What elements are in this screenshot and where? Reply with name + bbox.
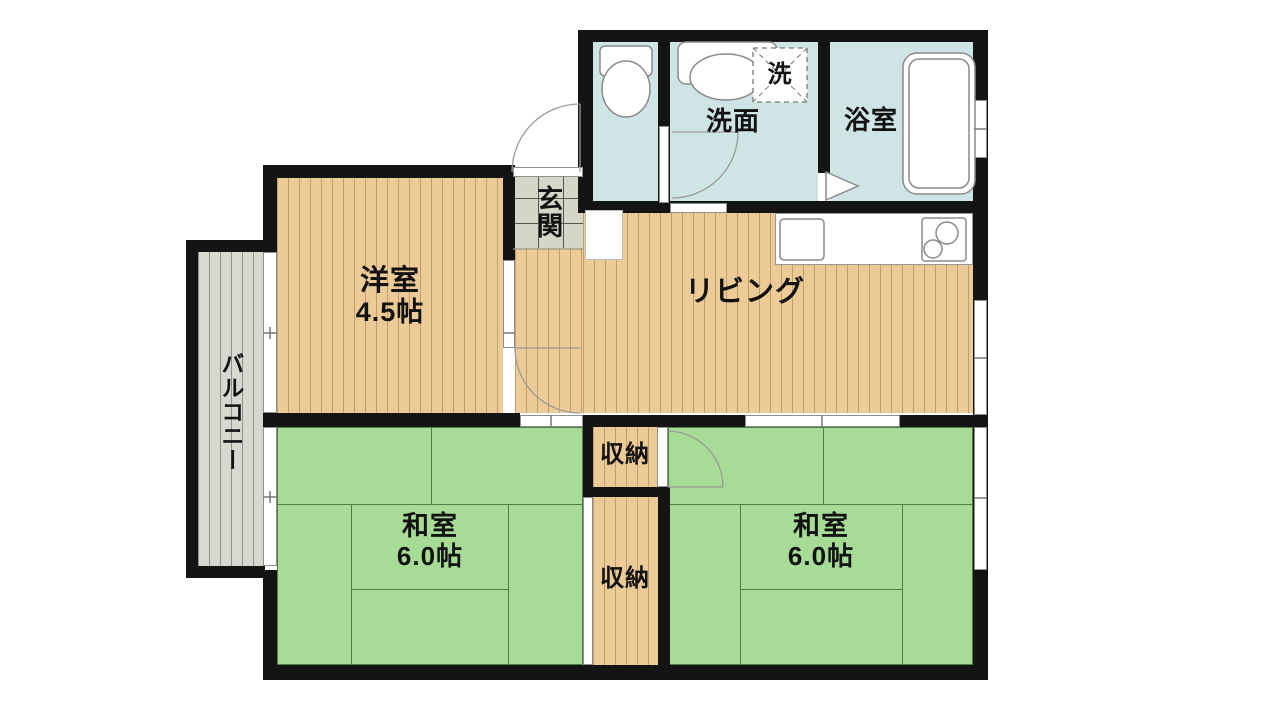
wall-balcony [186, 240, 265, 252]
wall [263, 570, 277, 680]
wall [503, 178, 515, 260]
sliding-door-japanese-right [745, 415, 900, 427]
tatami-mat [668, 427, 824, 505]
hall-area [515, 248, 583, 413]
western-room-name: 洋室 [356, 265, 425, 297]
tatami-mat [668, 504, 741, 665]
toilet-room-area [593, 42, 658, 201]
wall-balcony [186, 240, 198, 578]
front-door-threshold [513, 167, 583, 177]
sliding-door-japanese-left [520, 415, 583, 427]
japanese-room-right-name: 和室 [788, 511, 854, 541]
washroom-label: 洗面 [695, 105, 771, 139]
door-toilet [659, 126, 669, 203]
tatami-mat [277, 504, 352, 665]
wall [263, 165, 515, 178]
wall [578, 30, 988, 42]
window-western-balcony [263, 252, 277, 413]
wall-closet [583, 487, 670, 497]
opening-western-hall [503, 260, 515, 348]
window-bathroom [974, 100, 987, 158]
japanese-room-left-size: 6.0帖 [397, 542, 463, 571]
wall [578, 201, 988, 213]
tatami-mat [508, 504, 583, 665]
kitchen-counter [775, 213, 973, 265]
balcony-label: バルコニー [204, 333, 256, 491]
western-room-size: 4.5帖 [356, 297, 425, 327]
doorway-washroom [670, 203, 727, 213]
western-room-label: 洋室 4.5帖 [300, 263, 480, 329]
tatami-mat [351, 589, 509, 665]
window-living-right [974, 300, 987, 415]
tatami-mat [277, 427, 432, 505]
wall [578, 30, 593, 213]
wall [818, 42, 830, 173]
bathroom-label: 浴室 [831, 104, 911, 138]
wall [583, 415, 745, 427]
wall-balcony [186, 566, 265, 578]
closet-lower-label: 収納 [590, 563, 660, 595]
wall [263, 665, 988, 680]
closet-upper-label: 収納 [590, 439, 660, 471]
floor-plan: 洗面 洗 浴室 玄関 バルコニー リビング 洋室 4.5帖 収納 収納 和室 6… [0, 0, 1280, 720]
japanese-room-left-name: 和室 [397, 511, 463, 541]
japanese-room-right-label: 和室 6.0帖 [736, 510, 906, 572]
window-japanese-right [974, 427, 987, 570]
laundry-label: 洗 [753, 48, 807, 102]
wall [900, 415, 973, 427]
wall [263, 413, 520, 427]
japanese-room-right-size: 6.0帖 [788, 542, 854, 571]
japanese-room-left-label: 和室 6.0帖 [345, 510, 515, 572]
living-label: リビング [645, 274, 845, 310]
entrance-label: 玄関 [518, 179, 578, 245]
shoe-cabinet [585, 210, 623, 260]
tatami-mat [431, 427, 583, 505]
wall [263, 165, 277, 252]
front-door-swing [512, 104, 580, 172]
window-japanese-left-balcony [263, 427, 277, 566]
tatami-mat [823, 427, 973, 505]
tatami-mat [902, 504, 973, 665]
tatami-mat [740, 589, 903, 665]
